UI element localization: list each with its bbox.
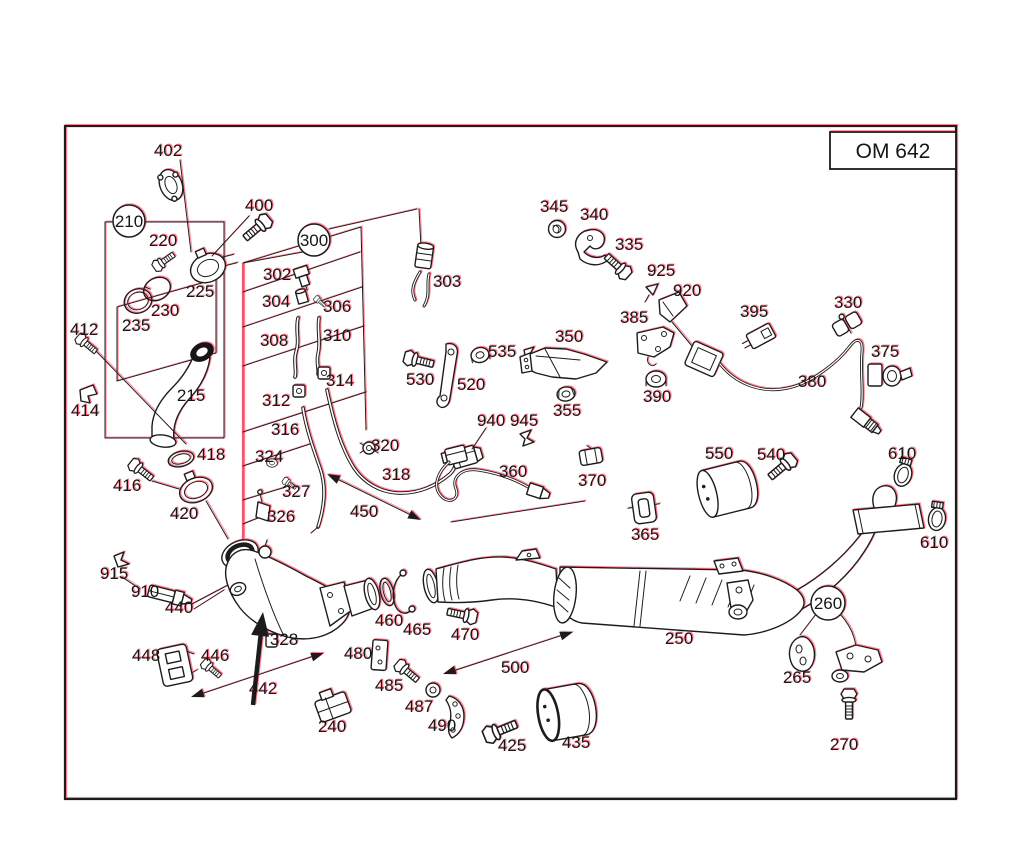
part-label-225: 225 (186, 282, 214, 301)
part-label-350: 350 (555, 327, 583, 346)
part-label-460: 460 (375, 611, 403, 630)
part-308-pipe (295, 318, 298, 377)
part-number-text-485: 485 (375, 676, 403, 695)
part-312-clip (293, 385, 305, 397)
part-925-pin (645, 284, 658, 302)
part-250-muffler (551, 558, 804, 635)
part-label-303: 303 (433, 272, 461, 291)
part-number-text-310: 310 (323, 326, 351, 345)
part-465-clamp (393, 570, 415, 613)
part-number-text-340: 340 (580, 205, 608, 224)
part-304-sleeve (295, 288, 308, 304)
part-label-310: 310 (323, 326, 351, 345)
part-number-text-535: 535 (488, 342, 516, 361)
part-number-text-530: 530 (406, 370, 434, 389)
part-label-250: 250 (665, 629, 693, 648)
part-number-text-480: 480 (344, 644, 372, 663)
part-number-text-418: 418 (197, 445, 225, 464)
part-label-416: 416 (113, 476, 141, 495)
part-number-text-540: 540 (757, 445, 785, 464)
part-label-265: 265 (783, 668, 811, 687)
part-385-bracket (637, 327, 674, 366)
part-label-485: 485 (375, 676, 403, 695)
part-number-text-390: 390 (643, 387, 671, 406)
part-label-380: 380 (798, 372, 826, 391)
part-250-front-pipe (421, 549, 558, 608)
part-340-bracket (576, 230, 608, 265)
part-label-450: 450 (350, 502, 378, 521)
part-number-text-910: 910 (131, 582, 159, 601)
part-label-465: 465 (403, 620, 431, 639)
part-number-text-355: 355 (553, 401, 581, 420)
part-number-text-225: 225 (186, 282, 214, 301)
part-number-text-270: 270 (830, 735, 858, 754)
part-label-312: 312 (262, 391, 290, 410)
part-label-360: 360 (499, 462, 527, 481)
part-label-320: 320 (371, 436, 399, 455)
part-label-340: 340 (580, 205, 608, 224)
part-310-pipe (317, 318, 319, 374)
part-label-400: 400 (245, 196, 273, 215)
part-label-270: 270 (830, 735, 858, 754)
part-number-text-400: 400 (245, 196, 273, 215)
part-number-text-360: 360 (499, 462, 527, 481)
part-395-connector (740, 323, 777, 353)
part-480-plate (371, 640, 388, 671)
part-number-text-302: 302 (263, 265, 291, 284)
part-number-text-265: 265 (783, 668, 811, 687)
part-label-215: 215 (177, 386, 205, 405)
part-number-text-402: 402 (154, 141, 182, 160)
part-number-text-945: 945 (510, 411, 538, 430)
part-920-control-module (684, 341, 724, 378)
part-220-bolt (150, 249, 177, 273)
part-number-text-370: 370 (578, 471, 606, 490)
part-number-text-915: 915 (100, 564, 128, 583)
part-label-535: 535 (488, 342, 516, 361)
part-label-395: 395 (740, 302, 768, 321)
part-448-clamp (156, 642, 199, 687)
part-390-nut (646, 371, 666, 387)
part-number-text-416: 416 (113, 476, 141, 495)
part-470-bolt (446, 604, 479, 626)
part-520-bracket (437, 344, 457, 408)
part-number-text-304: 304 (262, 292, 290, 311)
part-label-490: 490 (428, 716, 456, 735)
part-label-530: 530 (406, 370, 434, 389)
part-label-327: 327 (282, 482, 310, 501)
part-label-610: 610 (920, 533, 948, 552)
part-487-washer (426, 683, 440, 697)
part-number-text-306: 306 (323, 297, 351, 316)
part-labels-layer: 4024002202252302354124142153023043063083… (70, 141, 948, 755)
part-label-480: 480 (344, 644, 372, 663)
part-370-clip (578, 443, 603, 466)
part-number-text-210: 210 (115, 212, 143, 231)
part-number-text-260: 260 (814, 594, 842, 613)
part-label-442: 442 (249, 679, 277, 698)
part-label-385: 385 (620, 308, 648, 327)
part-number-text-925: 925 (647, 261, 675, 280)
part-label-390: 390 (643, 387, 671, 406)
part-label-316: 316 (271, 420, 299, 439)
part-355-nut (556, 386, 576, 403)
part-label-345: 345 (540, 197, 568, 216)
part-number-text-440: 440 (165, 598, 193, 617)
part-label-330: 330 (834, 293, 862, 312)
part-label-540: 540 (757, 445, 785, 464)
part-number-text-327: 327 (282, 482, 310, 501)
part-610-clamp-lower (927, 501, 948, 532)
part-number-text-330: 330 (834, 293, 862, 312)
part-label-308: 308 (260, 331, 288, 350)
part-225-clamp (183, 216, 249, 288)
part-label-318: 318 (382, 465, 410, 484)
part-label-940: 940 (477, 411, 505, 430)
part-label-435: 435 (562, 733, 590, 752)
part-label-412: 412 (70, 320, 98, 339)
part-label-326: 326 (267, 507, 295, 526)
part-400-bolt (240, 211, 275, 244)
part-530-bolt (402, 349, 435, 372)
part-label-306: 306 (323, 297, 351, 316)
part-number-text-450: 450 (350, 502, 378, 521)
part-number-text-335: 335 (615, 235, 643, 254)
part-number-text-610: 610 (920, 533, 948, 552)
part-335-screw (601, 250, 634, 282)
group-label-300: 300 (298, 224, 330, 256)
part-270-bracket (832, 645, 882, 719)
part-number-text-375: 375 (871, 342, 899, 361)
part-number-text-240: 240 (318, 717, 346, 736)
part-label-328: 328 (270, 630, 298, 649)
part-number-text-395: 395 (740, 302, 768, 321)
part-number-text-300: 300 (300, 231, 328, 250)
part-number-text-385: 385 (620, 308, 648, 327)
part-label-335: 335 (615, 235, 643, 254)
part-label-520: 520 (457, 375, 485, 394)
part-350-heat-shield (520, 348, 607, 379)
part-number-text-487: 487 (405, 697, 433, 716)
part-number-text-215: 215 (177, 386, 205, 405)
part-number-text-220: 220 (149, 231, 177, 250)
part-number-text-610: 610 (888, 444, 916, 463)
part-label-420: 420 (170, 504, 198, 523)
part-label-230: 230 (151, 301, 179, 320)
part-number-text-308: 308 (260, 331, 288, 350)
part-label-915: 915 (100, 564, 128, 583)
part-number-text-230: 230 (151, 301, 179, 320)
part-label-220: 220 (149, 231, 177, 250)
part-label-414: 414 (71, 401, 99, 420)
part-number-text-465: 465 (403, 620, 431, 639)
part-label-610: 610 (888, 444, 916, 463)
part-label-470: 470 (451, 625, 479, 644)
parts-diagram-canvas: OM 642 (0, 0, 1024, 851)
part-number-text-365: 365 (631, 525, 659, 544)
part-number-text-326: 326 (267, 507, 295, 526)
part-number-text-328: 328 (270, 630, 298, 649)
group-label-210: 210 (113, 205, 145, 237)
part-345-grommet (549, 221, 566, 238)
part-number-text-550: 550 (705, 444, 733, 463)
part-360-oxygen-sensor (437, 445, 552, 501)
part-label-365: 365 (631, 525, 659, 544)
group-label-260: 260 (811, 586, 845, 620)
part-number-text-316: 316 (271, 420, 299, 439)
engine-code-label: OM 642 (856, 140, 931, 163)
parts-diagram-page: OM 642 (0, 0, 1024, 851)
part-label-448: 448 (132, 646, 160, 665)
part-label-355: 355 (553, 401, 581, 420)
part-label-302: 302 (263, 265, 291, 284)
part-label-375: 375 (871, 342, 899, 361)
part-316-pipe (303, 408, 324, 533)
part-number-text-470: 470 (451, 625, 479, 644)
part-label-324: 324 (255, 447, 283, 466)
part-number-text-920: 920 (673, 281, 701, 300)
part-945-clip (520, 430, 534, 446)
part-label-240: 240 (318, 717, 346, 736)
part-label-402: 402 (154, 141, 182, 160)
part-375-holder (868, 364, 912, 386)
part-420-clamp (173, 466, 228, 539)
part-number-text-446: 446 (201, 646, 229, 665)
part-label-418: 418 (197, 445, 225, 464)
part-label-304: 304 (262, 292, 290, 311)
part-label-945: 945 (510, 411, 538, 430)
part-number-text-345: 345 (540, 197, 568, 216)
part-number-text-312: 312 (262, 391, 290, 410)
part-303-sensor (413, 242, 434, 306)
part-label-446: 446 (201, 646, 229, 665)
part-number-text-420: 420 (170, 504, 198, 523)
part-number-text-380: 380 (798, 372, 826, 391)
part-number-text-520: 520 (457, 375, 485, 394)
part-label-235: 235 (122, 316, 150, 335)
part-number-text-442: 442 (249, 679, 277, 698)
part-number-text-412: 412 (70, 320, 98, 339)
part-number-text-448: 448 (132, 646, 160, 665)
part-number-text-320: 320 (371, 436, 399, 455)
part-label-314: 314 (326, 371, 354, 390)
part-number-text-324: 324 (255, 447, 283, 466)
part-label-370: 370 (578, 471, 606, 490)
part-550-isolator (693, 458, 762, 519)
part-365-hanger (626, 491, 662, 525)
part-label-440: 440 (165, 598, 193, 617)
part-number-text-435: 435 (562, 733, 590, 752)
part-number-text-303: 303 (433, 272, 461, 291)
part-number-text-314: 314 (326, 371, 354, 390)
part-number-text-235: 235 (122, 316, 150, 335)
part-label-920: 920 (673, 281, 701, 300)
part-label-425: 425 (498, 736, 526, 755)
part-label-910: 910 (131, 582, 159, 601)
part-number-text-500: 500 (501, 658, 529, 677)
part-number-text-460: 460 (375, 611, 403, 630)
part-440-catalytic-converter (217, 534, 382, 647)
part-label-487: 487 (405, 697, 433, 716)
part-number-text-414: 414 (71, 401, 99, 420)
part-label-925: 925 (647, 261, 675, 280)
part-number-text-318: 318 (382, 465, 410, 484)
part-number-text-940: 940 (477, 411, 505, 430)
part-number-text-425: 425 (498, 736, 526, 755)
part-label-550: 550 (705, 444, 733, 463)
part-number-text-250: 250 (665, 629, 693, 648)
part-418-ring (167, 449, 196, 470)
part-number-text-350: 350 (555, 327, 583, 346)
part-number-text-490: 490 (428, 716, 456, 735)
part-label-500: 500 (501, 658, 529, 677)
